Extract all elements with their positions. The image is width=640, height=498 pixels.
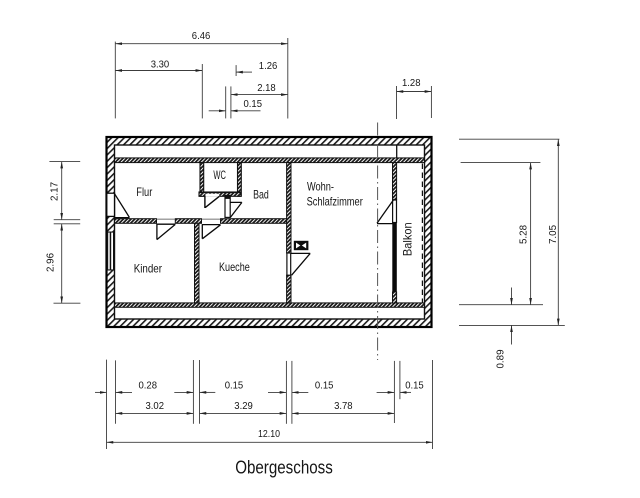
svg-text:0.28: 0.28	[139, 380, 158, 391]
svg-text:Wohn-: Wohn-	[307, 180, 334, 194]
svg-text:3.29: 3.29	[234, 401, 253, 412]
svg-text:Bad: Bad	[253, 187, 269, 201]
svg-text:6.46: 6.46	[192, 31, 211, 42]
svg-text:Kueche: Kueche	[219, 260, 250, 274]
svg-text:7.05: 7.05	[548, 225, 559, 244]
svg-text:0.15: 0.15	[315, 380, 334, 391]
svg-text:1.28: 1.28	[402, 78, 421, 89]
svg-text:3.02: 3.02	[146, 401, 165, 412]
svg-text:1.26: 1.26	[259, 61, 278, 72]
svg-text:2.96: 2.96	[46, 253, 57, 272]
svg-text:Obergeschoss: Obergeschoss	[235, 456, 333, 477]
svg-text:0.15: 0.15	[225, 380, 244, 391]
svg-text:0.15: 0.15	[405, 380, 424, 391]
svg-text:Schlafzimmer: Schlafzimmer	[307, 195, 363, 209]
svg-text:12.10: 12.10	[258, 429, 280, 440]
svg-text:Balkon: Balkon	[401, 222, 415, 256]
svg-text:Flur: Flur	[136, 185, 152, 199]
svg-text:WC: WC	[213, 168, 226, 182]
svg-text:3.78: 3.78	[334, 401, 353, 412]
svg-text:3.30: 3.30	[151, 59, 170, 70]
svg-text:0.15: 0.15	[244, 99, 263, 110]
svg-text:Kinder: Kinder	[134, 262, 162, 276]
svg-text:0.89: 0.89	[496, 349, 507, 368]
svg-text:2.18: 2.18	[257, 83, 276, 94]
svg-text:2.17: 2.17	[50, 182, 61, 201]
svg-text:5.28: 5.28	[519, 225, 530, 244]
